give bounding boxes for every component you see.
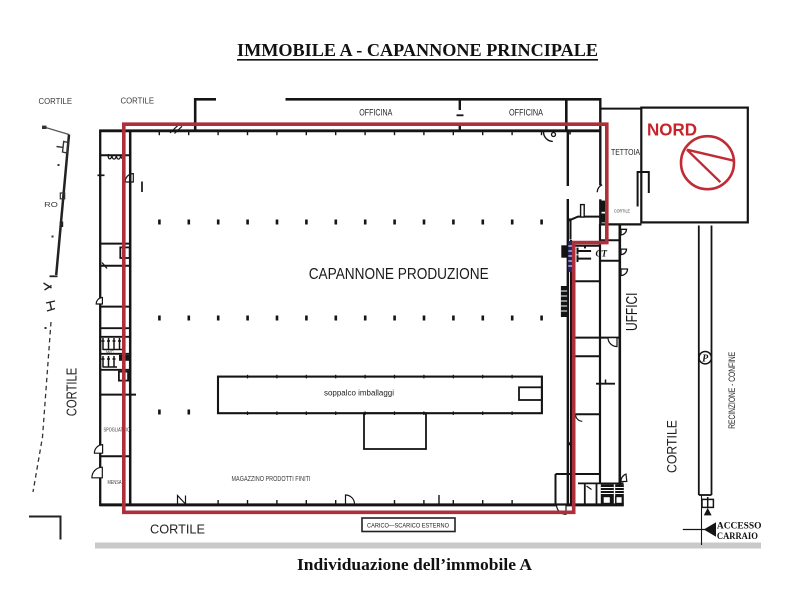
svg-text:CAPANNONE PRODUZIONE: CAPANNONE PRODUZIONE [309,266,489,283]
svg-text:SPOGLIATOIO: SPOGLIATOIO [104,428,131,434]
svg-text:MAGAZZINO PRODOTTI FINITI: MAGAZZINO PRODOTTI FINITI [232,476,311,483]
svg-text:CARRAIO: CARRAIO [717,531,758,542]
svg-text:RO: RO [44,202,58,209]
svg-text:MENSA: MENSA [108,480,123,486]
svg-text:IMMOBILE A - CAPANNONE PRIN: IMMOBILE A - CAPANNONE PRINCIPALE [237,40,598,60]
svg-text:Individuazione dell’immobile A: Individuazione dell’immobile A [297,555,532,574]
svg-text:CORTILE: CORTILE [39,97,73,106]
svg-text:CARICO—SCARICO ESTERNO: CARICO—SCARICO ESTERNO [367,524,449,530]
svg-text:P: P [702,354,709,365]
svg-text:CORTILE: CORTILE [65,367,81,416]
svg-text:RECINZIONE - CONFINE: RECINZIONE - CONFINE [727,352,737,429]
svg-text:UFFICI: UFFICI [624,293,641,332]
svg-text:soppalco imballaggi: soppalco imballaggi [324,388,394,397]
svg-text:CORTILE: CORTILE [121,97,155,106]
svg-text:OFFICINA: OFFICINA [359,107,392,118]
svg-text:CORTILE: CORTILE [150,522,205,537]
svg-text:OFFICINA: OFFICINA [509,107,543,118]
svg-text:NORD: NORD [647,120,697,140]
svg-text:CT: CT [596,249,608,259]
svg-text:TETTOIA: TETTOIA [611,147,640,157]
svg-text:CORTILE: CORTILE [664,420,680,473]
svg-text:CORTILE: CORTILE [614,209,630,215]
